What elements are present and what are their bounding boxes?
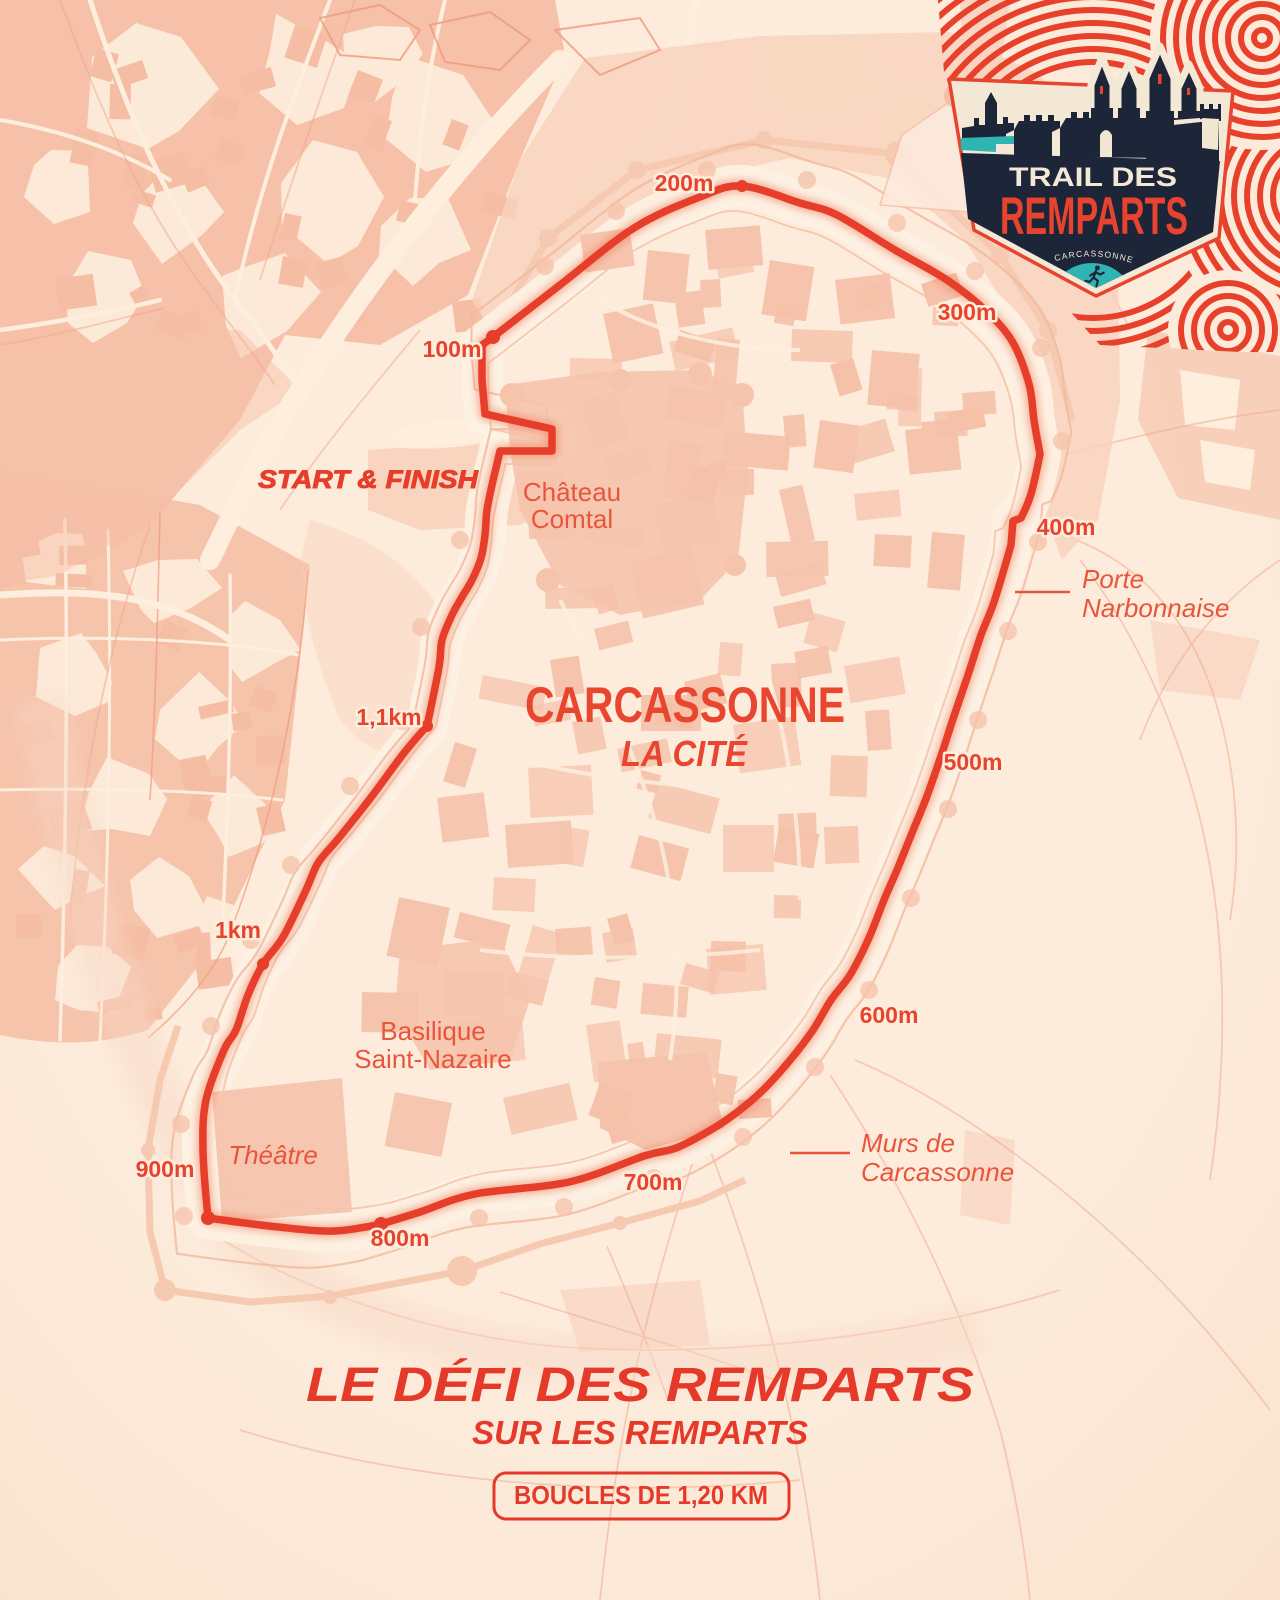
svg-text:Saint-Nazaire: Saint-Nazaire bbox=[354, 1044, 512, 1074]
svg-text:200m: 200m bbox=[655, 170, 714, 196]
svg-text:LE DÉFI DES REMPARTS: LE DÉFI DES REMPARTS bbox=[306, 1358, 974, 1412]
svg-text:800m: 800m bbox=[371, 1225, 430, 1251]
svg-text:1km: 1km bbox=[215, 917, 261, 943]
svg-text:CARCASSONNE: CARCASSONNE bbox=[525, 677, 845, 733]
svg-text:Narbonnaise: Narbonnaise bbox=[1082, 593, 1229, 623]
svg-text:400m: 400m bbox=[1037, 514, 1096, 540]
svg-text:700m: 700m bbox=[624, 1169, 683, 1195]
svg-text:LA CITÉ: LA CITÉ bbox=[621, 733, 748, 774]
svg-text:1,1km: 1,1km bbox=[356, 704, 421, 730]
svg-text:500m: 500m bbox=[944, 749, 1003, 775]
svg-text:Comtal: Comtal bbox=[531, 504, 613, 534]
svg-text:Château: Château bbox=[523, 477, 621, 507]
svg-text:Basilique: Basilique bbox=[380, 1016, 486, 1046]
svg-text:REMPARTS: REMPARTS bbox=[1000, 188, 1188, 246]
svg-text:100m: 100m bbox=[423, 336, 482, 362]
svg-text:Murs de: Murs de bbox=[861, 1128, 955, 1158]
svg-text:Carcassonne: Carcassonne bbox=[861, 1157, 1014, 1187]
svg-text:BOUCLES DE 1,20 KM: BOUCLES DE 1,20 KM bbox=[514, 1480, 768, 1510]
svg-text:Porte: Porte bbox=[1082, 564, 1144, 594]
svg-text:SUR LES REMPARTS: SUR LES REMPARTS bbox=[472, 1414, 808, 1451]
svg-text:600m: 600m bbox=[860, 1002, 919, 1028]
svg-text:START & FINISH: START & FINISH bbox=[258, 466, 479, 494]
svg-text:Théâtre: Théâtre bbox=[228, 1140, 318, 1170]
svg-text:900m: 900m bbox=[136, 1156, 195, 1182]
svg-text:300m: 300m bbox=[938, 299, 997, 325]
